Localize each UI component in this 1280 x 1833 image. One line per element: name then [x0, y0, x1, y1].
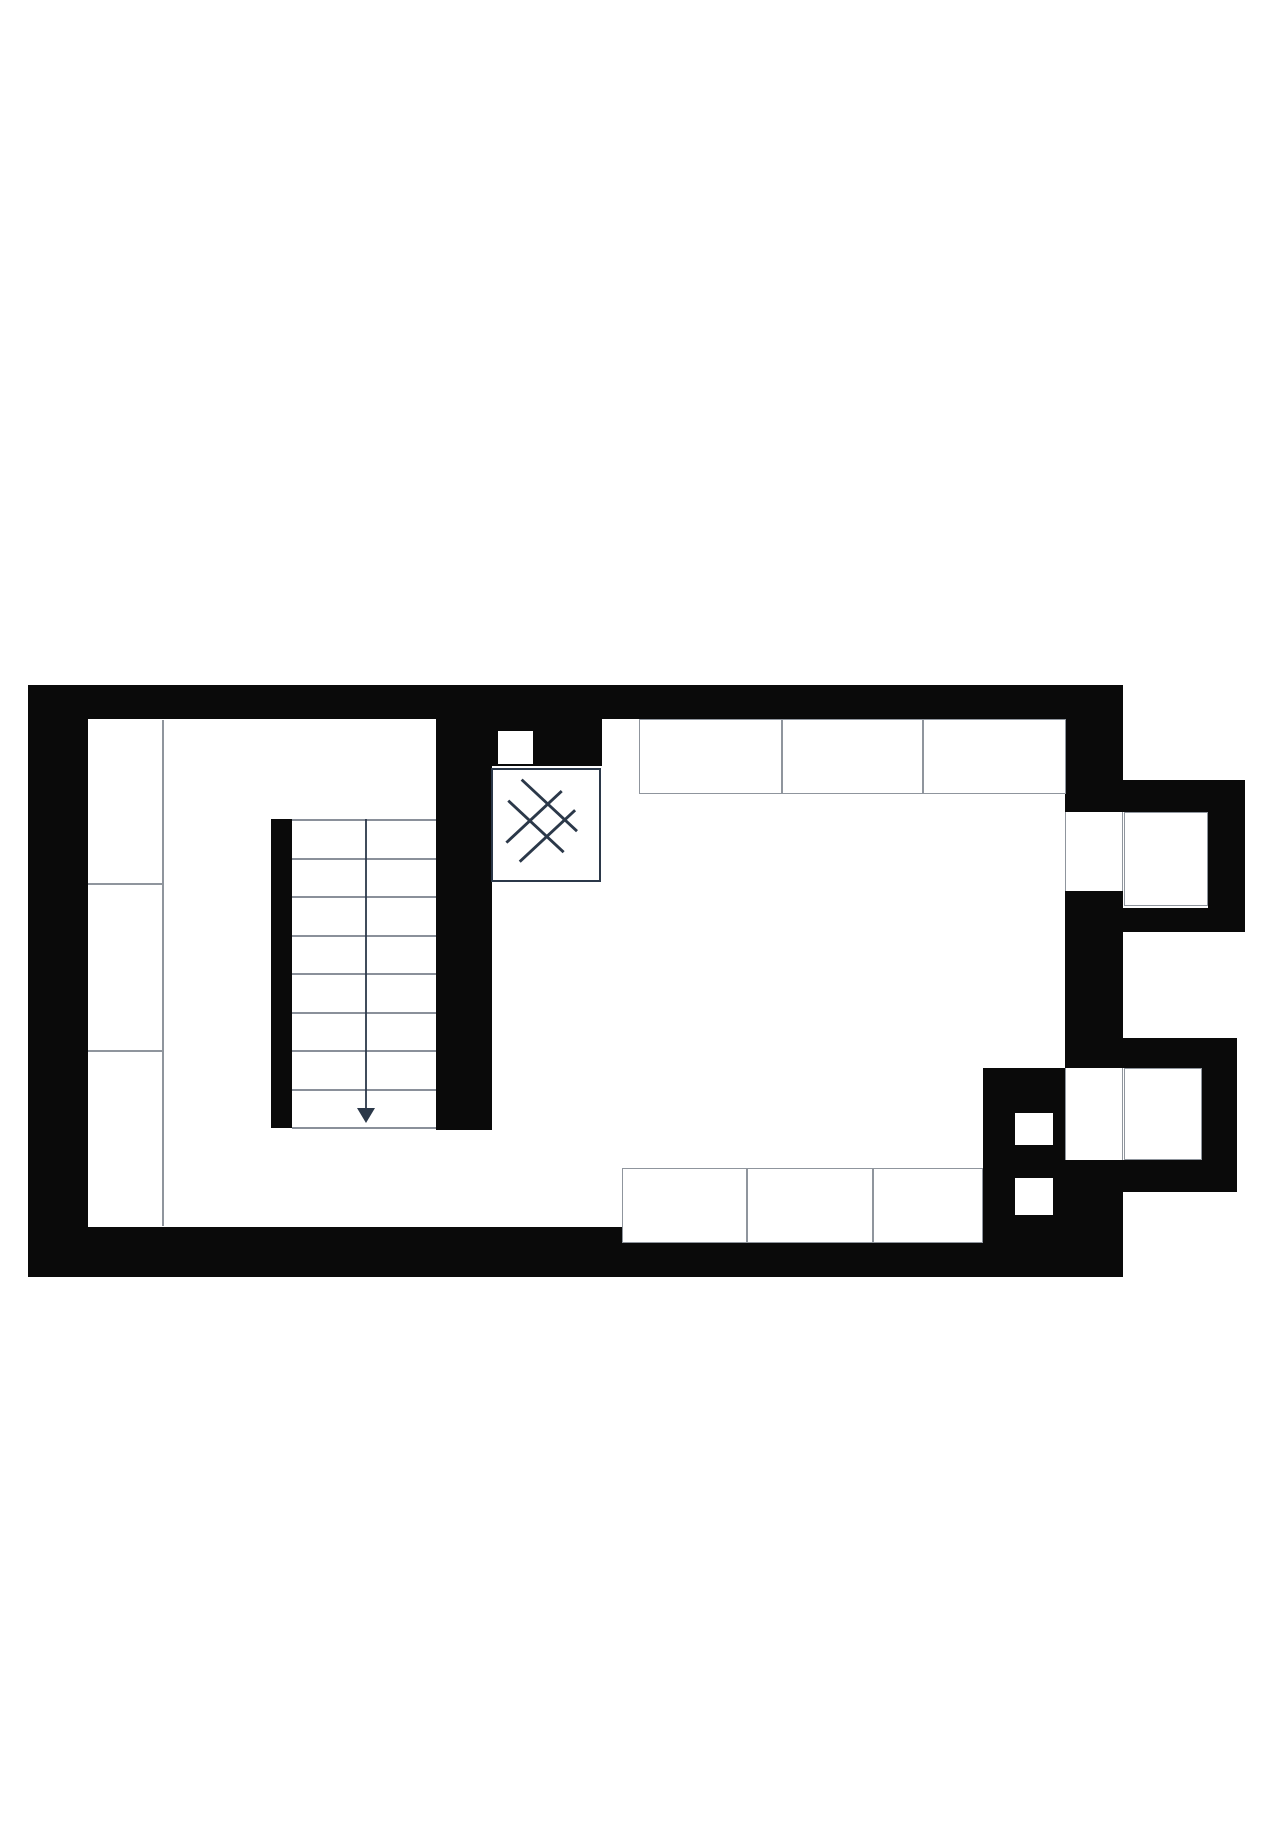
chimney-block	[983, 1068, 1065, 1277]
middle-wall	[436, 719, 492, 1130]
shower-hatch-icon	[493, 770, 598, 879]
lower-bay-interior	[1124, 1068, 1202, 1160]
top-counter-cell-2	[782, 719, 923, 794]
stair-direction-arrow	[292, 819, 436, 1128]
bottom-counter-cell-1	[622, 1168, 747, 1243]
floor-plan	[0, 0, 1280, 1833]
chimney-flue-upper	[1015, 1113, 1053, 1145]
bottom-counter-cell-3	[873, 1168, 983, 1243]
stair-spine-wall	[271, 819, 292, 1128]
chimney-flue-lower	[1015, 1178, 1053, 1215]
top-counter-cell-1	[639, 719, 782, 794]
shower-tray	[491, 768, 601, 882]
staircase	[292, 819, 436, 1128]
upper-bay-wall-bottom	[1123, 908, 1245, 932]
lower-bay-wall-bottom	[1123, 1160, 1237, 1192]
top-wall	[28, 685, 1123, 719]
closet-front-line	[162, 720, 164, 1226]
upper-window-opening	[1065, 812, 1123, 891]
closet-divider-2	[88, 1050, 164, 1052]
lower-window-opening	[1065, 1068, 1123, 1160]
top-counter-cell-3	[923, 719, 1066, 794]
right-wall	[1065, 719, 1123, 1277]
upper-bay-interior	[1124, 812, 1208, 906]
closet-divider-1	[88, 883, 164, 885]
duct-opening	[498, 731, 533, 764]
bottom-counter-cell-2	[747, 1168, 873, 1243]
left-wall	[28, 685, 88, 1277]
